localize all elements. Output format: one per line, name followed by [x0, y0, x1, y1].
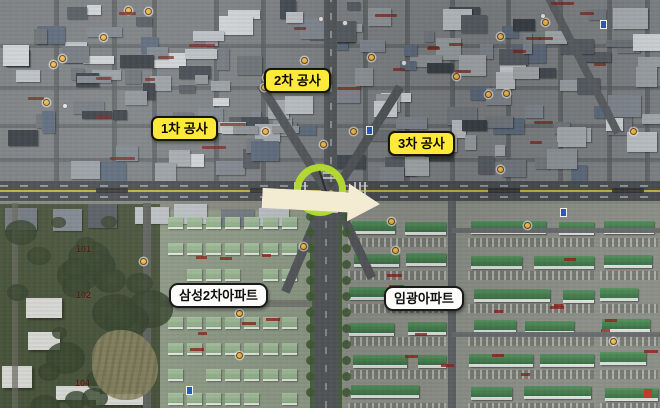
callout-construction-phase-1: 1차 공사 [151, 116, 218, 141]
annotation-layer: 1차 공사 2차 공사 3차 공사 삼성2차아파트 임광아파트 101 102 … [0, 0, 660, 408]
callout-samsung-2cha-apartment: 삼성2차아파트 [169, 283, 268, 308]
satellite-map: 1차 공사 2차 공사 3차 공사 삼성2차아파트 임광아파트 101 102 … [0, 0, 660, 408]
watermark-text: 한민일보 [655, 400, 660, 408]
callout-imgwang-apartment: 임광아파트 [384, 286, 464, 311]
parcel-label-104: 104 [75, 378, 90, 388]
parcel-label-101: 101 [76, 244, 91, 254]
callout-construction-phase-3: 3차 공사 [388, 131, 455, 156]
callout-construction-phase-2: 2차 공사 [264, 68, 331, 93]
watermark-logo-mark [644, 389, 652, 397]
parcel-label-102: 102 [76, 290, 91, 300]
